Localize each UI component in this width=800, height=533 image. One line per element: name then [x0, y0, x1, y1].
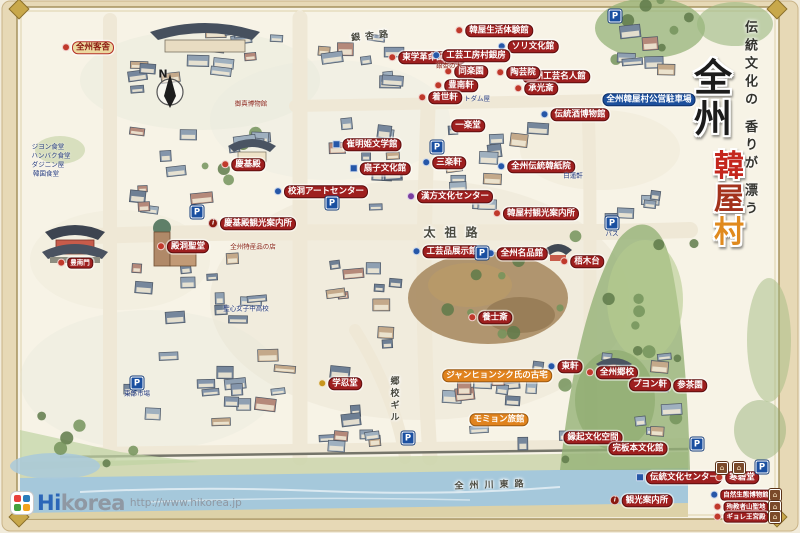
place-name: 崔明姫文学館: [342, 138, 401, 151]
map-label: 伝統酒博物館: [540, 108, 609, 121]
small-annotation-text: ジヨン食堂: [32, 143, 65, 150]
map-label: 自然生態博物館: [710, 490, 772, 501]
map-label: 全州客舎: [62, 41, 114, 54]
marker-dot-icon: [332, 141, 340, 149]
map-label: 慶基殿: [221, 158, 265, 171]
parking-icon: P: [402, 432, 415, 445]
hanok-village-map: 全州客舎豊南門殿洞聖堂慶基殿i慶基殿観光案内所校洞アートセンター崔明姫文学館扇子…: [0, 0, 800, 533]
marker-dot-icon: [418, 94, 426, 102]
place-name: 扇子文化館: [360, 162, 411, 175]
place-name: 全州韓屋村公営駐車場: [602, 93, 695, 106]
parking-marker: P: [606, 217, 619, 230]
map-label: ジャンヒョンシク氏の古宅: [442, 369, 552, 382]
marker-dot-icon: [434, 82, 442, 90]
small-annotation: トダム屋: [464, 95, 490, 102]
road-name: 太祖路: [423, 224, 486, 241]
place-name: 参茶園: [673, 379, 707, 392]
place-name: 工芸品展示館: [422, 245, 481, 258]
road-name: 全州川東路: [454, 476, 529, 492]
road-name-text: 全州川東路: [454, 476, 529, 492]
title-char: 韓: [710, 150, 748, 183]
place-name: 韓屋村観光案内所: [503, 207, 579, 220]
place-name: 観光案内所: [622, 494, 673, 507]
place-name: 豊南門: [67, 258, 93, 269]
marker-dot-icon: [468, 314, 476, 322]
map-label: 韓屋生活体験館: [455, 24, 533, 37]
house-icon: ⌂: [769, 511, 781, 523]
info-icon: i: [208, 219, 218, 229]
map-label: 全州韓屋村公営駐車場: [602, 93, 695, 106]
place-name: ソリ文化館: [508, 40, 559, 53]
map-label: 三楽軒: [422, 156, 466, 169]
map-label: 学忍堂: [318, 377, 362, 390]
small-annotation-text: 銀杏の木: [436, 62, 462, 69]
road-name-text: 銀杏路: [350, 26, 393, 43]
marker-dot-icon: [62, 44, 70, 52]
marker-dot-icon: [540, 111, 548, 119]
small-annotation-text: 東部市場: [124, 390, 150, 397]
small-annotation-text: ハンバク食堂: [32, 152, 71, 159]
parking-icon: P: [606, 217, 619, 230]
map-label: 崔明姫文学館: [332, 138, 401, 151]
place-name: 慶基殿: [231, 158, 265, 171]
map-label: 殿洞聖堂: [157, 240, 209, 253]
parking-marker: P: [131, 377, 144, 390]
marker-dot-icon: [714, 512, 722, 520]
small-annotation: ジヨン食堂: [32, 143, 65, 150]
place-name: 着世軒: [428, 91, 462, 104]
place-name: 全州名品館: [497, 247, 548, 260]
place-name: 陶芸院: [506, 66, 540, 79]
house-marker: ⌂: [716, 462, 728, 474]
map-title-hanok-village: 韓屋村: [710, 150, 748, 249]
marker-dot-icon: [422, 159, 430, 167]
parking-icon: P: [191, 206, 204, 219]
place-name: モミョン旅館: [469, 413, 528, 426]
map-label: ギョレ王宮殿: [714, 512, 769, 523]
small-annotation: 銀杏の木: [436, 62, 462, 69]
small-annotation-text: バス: [606, 230, 619, 237]
map-label: 扇子文化館: [350, 162, 411, 175]
place-name: 承光斎: [524, 82, 558, 95]
small-annotation: 東部市場: [124, 390, 150, 397]
place-name: プヨン軒: [629, 378, 671, 391]
small-annotation-text: トダム屋: [464, 95, 490, 102]
parking-marker: P: [476, 247, 489, 260]
marker-dot-icon: [497, 163, 505, 171]
place-name: 東軒: [557, 360, 582, 373]
small-annotation: 全州特産品の店: [230, 243, 276, 250]
title-char: 全: [692, 58, 734, 99]
label-layer: 全州客舎豊南門殿洞聖堂慶基殿i慶基殿観光案内所校洞アートセンター崔明姫文学館扇子…: [0, 0, 800, 533]
small-annotation-text: 韓国食堂: [33, 170, 59, 177]
road-name-text: 太祖路: [423, 224, 486, 241]
marker-dot-icon: [350, 165, 358, 173]
hikorea-logo-icon: [10, 491, 34, 515]
logo-text-korea: korea: [61, 491, 125, 515]
road-name: 郷校ギル: [388, 376, 401, 424]
map-label: 一楽堂: [451, 119, 485, 132]
small-annotation-text: 聖心女子中高校: [223, 305, 269, 312]
house-icon: ⌂: [716, 462, 728, 474]
map-label: i観光案内所: [610, 494, 673, 507]
marker-dot-icon: [715, 474, 723, 482]
parking-marker: P: [431, 141, 444, 154]
small-annotation: バス: [606, 230, 619, 237]
parking-icon: P: [131, 377, 144, 390]
marker-dot-icon: [318, 380, 326, 388]
map-label: 漢方文化センター: [407, 190, 493, 203]
parking-marker: P: [691, 438, 704, 451]
marker-dot-icon: [432, 52, 440, 60]
marker-dot-icon: [274, 188, 282, 196]
marker-dot-icon: [57, 258, 65, 266]
place-name: 慶基殿観光案内所: [220, 217, 296, 230]
house-marker: ⌂: [769, 511, 781, 523]
title-char: 村: [710, 216, 748, 249]
small-annotation: 御真博物館: [235, 100, 268, 107]
parking-marker: P: [191, 206, 204, 219]
parking-icon: P: [691, 438, 704, 451]
marker-dot-icon: [493, 210, 501, 218]
map-label: 梧木台: [560, 255, 604, 268]
marker-dot-icon: [412, 248, 420, 256]
map-label: 伝統文化センター: [636, 471, 722, 484]
house-icon: ⌂: [733, 462, 745, 474]
map-label: 着世軒: [418, 91, 462, 104]
small-annotation: ハンバク食堂: [32, 152, 71, 159]
place-name: 三楽軒: [432, 156, 466, 169]
map-label: 参茶園: [673, 379, 707, 392]
parking-icon: P: [476, 247, 489, 260]
parking-marker: P: [609, 10, 622, 23]
map-label: プヨン軒: [629, 378, 671, 391]
small-annotation: 韓国食堂: [33, 170, 59, 177]
marker-dot-icon: [407, 193, 415, 201]
parking-marker: P: [756, 461, 769, 474]
compass-n-label: N: [158, 68, 167, 81]
parking-icon: P: [431, 141, 444, 154]
road-name: 銀杏路: [350, 26, 393, 43]
map-label: 工芸品展示館: [412, 245, 481, 258]
house-marker: ⌂: [733, 462, 745, 474]
logo-url: http://www.hikorea.jp: [130, 497, 242, 509]
marker-dot-icon: [710, 490, 718, 498]
place-name: 漢方文化センター: [417, 190, 493, 203]
small-annotation-text: 白蓮軒: [563, 172, 583, 179]
compass-north: N: [158, 68, 167, 81]
map-label: 豊南門: [57, 258, 93, 269]
house-icon: ⌂: [769, 489, 781, 501]
small-annotation-text: 全州特産品の店: [230, 243, 276, 250]
house-marker: ⌂: [769, 489, 781, 501]
place-name: 完板本文化館: [608, 442, 667, 455]
parking-icon: P: [609, 10, 622, 23]
hikorea-logo: Hi korea http://www.hikorea.jp: [10, 491, 242, 515]
place-name: 韓屋生活体験館: [465, 24, 533, 37]
marker-dot-icon: [714, 502, 722, 510]
marker-dot-icon: [560, 258, 568, 266]
marker-dot-icon: [496, 69, 504, 77]
marker-dot-icon: [586, 369, 594, 377]
map-title-jeonju: 全州: [692, 58, 734, 140]
map-label: 東軒: [547, 360, 582, 373]
place-name: ギョレ王宮殿: [724, 512, 769, 523]
small-annotation: 白蓮軒: [563, 172, 583, 179]
place-name: 自然生態博物館: [720, 490, 772, 501]
marker-dot-icon: [455, 27, 463, 35]
place-name: 学忍堂: [328, 377, 362, 390]
small-annotation-text: ダジニン屋: [32, 161, 65, 168]
small-annotation: ダジニン屋: [32, 161, 65, 168]
logo-text-hi: Hi: [37, 491, 61, 515]
place-name: 全州客舎: [72, 41, 114, 54]
place-name: 伝統酒博物館: [550, 108, 609, 121]
marker-dot-icon: [388, 54, 396, 62]
map-label: 全州名品館: [487, 247, 548, 260]
marker-dot-icon: [636, 474, 644, 482]
marker-dot-icon: [221, 161, 229, 169]
marker-dot-icon: [157, 243, 165, 251]
map-label: 承光斎: [514, 82, 558, 95]
small-annotation: 聖心女子中高校: [223, 305, 269, 312]
title-char: 屋: [710, 183, 748, 216]
parking-icon: P: [326, 197, 339, 210]
marker-dot-icon: [547, 363, 555, 371]
map-label: 韓屋村観光案内所: [493, 207, 579, 220]
map-label: i慶基殿観光案内所: [208, 217, 296, 230]
place-name: 一楽堂: [451, 119, 485, 132]
map-label: モミョン旅館: [469, 413, 528, 426]
parking-marker: P: [402, 432, 415, 445]
place-name: 殿洞聖堂: [167, 240, 209, 253]
place-name: 伝統文化センター: [646, 471, 722, 484]
marker-dot-icon: [514, 85, 522, 93]
title-char: 州: [692, 99, 734, 140]
parking-marker: P: [326, 197, 339, 210]
parking-icon: P: [756, 461, 769, 474]
road-name-text: 郷校ギル: [388, 376, 401, 424]
map-label: 校洞アートセンター: [274, 185, 368, 198]
place-name: ジャンヒョンシク氏の古宅: [442, 369, 552, 382]
map-label: 完板本文化館: [608, 442, 667, 455]
map-label: 養士斎: [468, 311, 512, 324]
map-label: 陶芸院: [496, 66, 540, 79]
place-name: 養士斎: [478, 311, 512, 324]
small-annotation-text: 御真博物館: [235, 100, 268, 107]
place-name: 梧木台: [570, 255, 604, 268]
info-icon: i: [610, 496, 620, 506]
